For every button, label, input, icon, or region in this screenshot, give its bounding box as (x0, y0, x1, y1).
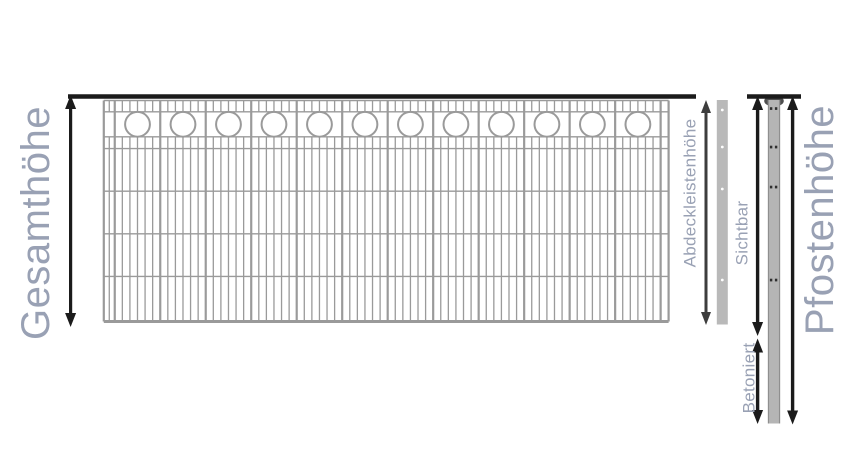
fence-dimension-diagram: Gesamthöhe Abdeckleistenhöhe Sichtbar Be… (0, 0, 865, 454)
label-betoniert: Betoniert (741, 343, 758, 414)
arrow-pfostenhoehe (787, 96, 798, 425)
label-sichtbar: Sichtbar (734, 201, 751, 266)
fence-post (764, 96, 784, 424)
cover-strip (717, 100, 728, 325)
label-gesamthoehe: Gesamthöhe (16, 106, 56, 340)
arrow-abdeckleistenhoehe (701, 100, 711, 325)
arrow-gesamthoehe (65, 95, 76, 327)
label-abdeckleistenhoehe: Abdeckleistenhöhe (682, 119, 699, 268)
arrow-sichtbar (752, 96, 763, 336)
label-pfostenhoehe: Pfostenhöhe (800, 105, 840, 335)
